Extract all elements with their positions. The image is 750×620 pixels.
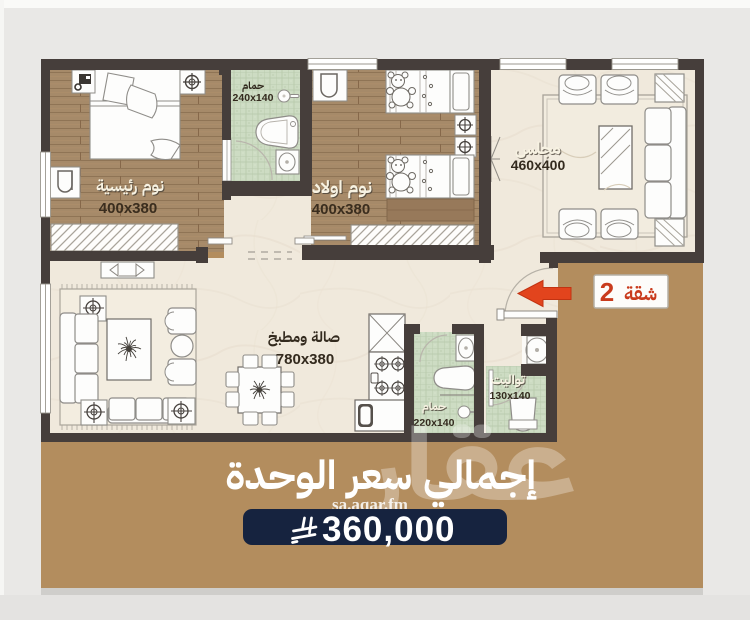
svg-text:2: 2 xyxy=(600,277,614,307)
svg-text:400x380: 400x380 xyxy=(312,201,370,218)
svg-text:460x400: 460x400 xyxy=(511,157,566,173)
svg-text:400x380: 400x380 xyxy=(99,200,157,217)
svg-text:780x380: 780x380 xyxy=(276,351,334,368)
svg-text:360,000: 360,000 xyxy=(322,510,456,549)
svg-text:130x140: 130x140 xyxy=(490,390,531,402)
svg-text:240x140: 240x140 xyxy=(233,92,274,104)
